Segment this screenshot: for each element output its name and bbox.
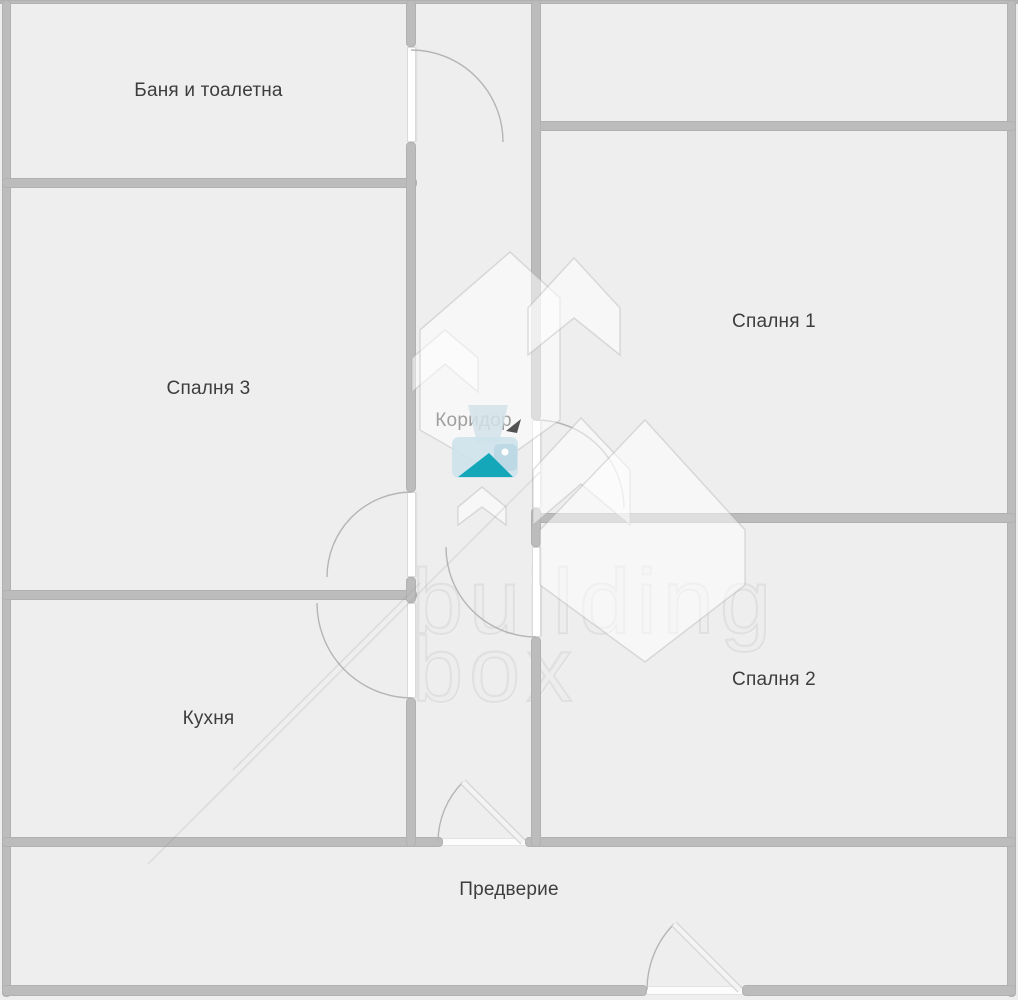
door-leaf-kitchen — [407, 603, 416, 698]
door-leaf-bedroom3 — [407, 492, 416, 577]
room-label-bedroom1: Спалня 1 — [732, 311, 816, 333]
wall-corridor-left-seg3 — [406, 577, 416, 603]
wall-bathroom-bedroom3 — [2, 178, 417, 188]
wall-outer-bottom-left — [2, 985, 647, 996]
wall-outer-right — [1007, 0, 1016, 997]
wall-corridor-right-seg1 — [531, 0, 541, 420]
wall-corridor-left-seg1 — [406, 0, 416, 47]
wall-kitchen-hall — [2, 837, 443, 847]
room-hall: Предверие — [11, 847, 1007, 985]
room-terrace — [541, 4, 1007, 121]
wall-bedroom1-bedroom2 — [531, 513, 1016, 523]
wall-terrace-bedroom1 — [531, 121, 1016, 131]
door-leaf-bathroom — [407, 47, 416, 142]
room-label-kitchen: Кухня — [183, 708, 235, 730]
wall-corridor-left-seg4 — [406, 698, 416, 847]
room-bedroom1: Спалня 1 — [541, 131, 1007, 513]
room-label-bathroom: Баня и тоалетна — [134, 80, 282, 102]
room-corridor: Коридор — [416, 4, 531, 837]
door-opening-corridor-hall — [443, 838, 525, 846]
wall-corridor-left-seg2 — [406, 142, 416, 492]
room-label-bedroom3: Спалня 3 — [167, 378, 251, 400]
room-bathroom: Баня и тоалетна — [11, 4, 406, 178]
floor-plan: building box — [0, 0, 1018, 1000]
room-label-corridor: Коридор — [435, 410, 511, 432]
door-leaf-bedroom1 — [532, 420, 541, 508]
wall-corridor-right-seg3 — [531, 637, 541, 847]
room-kitchen: Кухня — [11, 600, 406, 837]
wall-bedroom2-hall — [525, 837, 1016, 847]
door-leaf-bedroom2 — [532, 547, 541, 637]
room-label-bedroom2: Спалня 2 — [732, 669, 816, 691]
wall-bedroom3-kitchen — [2, 590, 417, 600]
room-bedroom3: Спалня 3 — [11, 188, 406, 590]
wall-corridor-right-seg2 — [531, 508, 541, 547]
wall-outer-left — [2, 0, 11, 997]
room-label-hall: Предверие — [459, 879, 558, 901]
room-bedroom2: Спалня 2 — [541, 523, 1007, 837]
wall-outer-bottom-right — [742, 985, 1016, 996]
door-opening-entrance — [647, 986, 742, 995]
